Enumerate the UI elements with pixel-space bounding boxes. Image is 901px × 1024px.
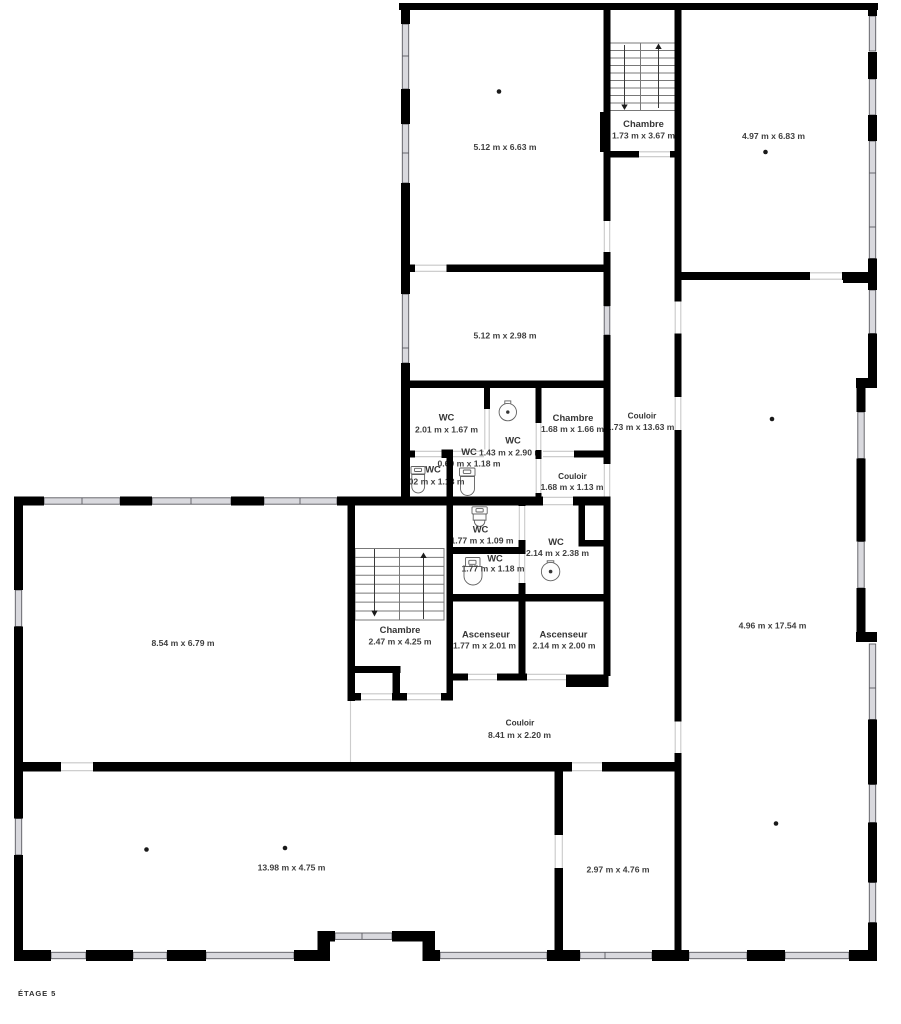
- svg-text:1.77 m x 2.01 m: 1.77 m x 2.01 m: [453, 641, 516, 651]
- svg-text:8.41 m x 2.20 m: 8.41 m x 2.20 m: [488, 730, 551, 740]
- svg-text:1.68 m x 1.13 m: 1.68 m x 1.13 m: [540, 482, 603, 492]
- svg-text:1.02 m x 1.18 m: 1.02 m x 1.18 m: [401, 477, 464, 487]
- svg-text:Couloir: Couloir: [628, 412, 657, 421]
- svg-text:WC: WC: [487, 553, 503, 564]
- svg-text:1.73 m x 13.63 m: 1.73 m x 13.63 m: [607, 422, 675, 432]
- svg-text:2.14 m x 2.38 m: 2.14 m x 2.38 m: [526, 548, 589, 558]
- svg-text:1.43 m x 2.90 m: 1.43 m x 2.90 m: [479, 448, 542, 458]
- svg-text:1.77 m x 1.18 m: 1.77 m x 1.18 m: [461, 564, 524, 574]
- svg-text:8.54 m x 6.79 m: 8.54 m x 6.79 m: [151, 638, 214, 648]
- svg-text:1.68 m x 1.66 m: 1.68 m x 1.66 m: [541, 424, 604, 434]
- svg-text:Couloir: Couloir: [506, 719, 535, 728]
- svg-text:4.97 m x 6.83 m: 4.97 m x 6.83 m: [742, 131, 805, 141]
- svg-text:5.12 m x 6.63 m: 5.12 m x 6.63 m: [473, 142, 536, 152]
- svg-text:13.98 m x 4.75 m: 13.98 m x 4.75 m: [258, 863, 326, 873]
- svg-text:Chambre: Chambre: [623, 118, 664, 129]
- svg-text:1.73 m x 3.67 m: 1.73 m x 3.67 m: [612, 131, 675, 141]
- svg-text:2.01 m x 1.67 m: 2.01 m x 1.67 m: [415, 425, 478, 435]
- svg-text:WC: WC: [505, 435, 521, 446]
- svg-text:Chambre: Chambre: [553, 412, 594, 423]
- svg-text:2.14 m x 2.00 m: 2.14 m x 2.00 m: [532, 641, 595, 651]
- svg-text:1.77 m x 1.09 m: 1.77 m x 1.09 m: [450, 536, 513, 546]
- svg-text:WC: WC: [548, 536, 564, 547]
- svg-text:4.96 m x 17.54 m: 4.96 m x 17.54 m: [739, 621, 807, 631]
- svg-text:ÉTAGE 5: ÉTAGE 5: [18, 989, 56, 998]
- svg-text:2.47 m x 4.25 m: 2.47 m x 4.25 m: [368, 637, 431, 647]
- svg-text:WC: WC: [439, 412, 455, 423]
- svg-text:Ascenseur: Ascenseur: [462, 629, 510, 640]
- svg-text:2.97 m x 4.76 m: 2.97 m x 4.76 m: [586, 865, 649, 875]
- svg-text:Ascenseur: Ascenseur: [540, 629, 588, 640]
- svg-text:Chambre: Chambre: [380, 624, 421, 635]
- svg-text:5.12 m x 2.98 m: 5.12 m x 2.98 m: [473, 331, 536, 341]
- svg-text:WC: WC: [425, 464, 441, 475]
- svg-text:Couloir: Couloir: [558, 472, 587, 481]
- svg-text:WC: WC: [473, 524, 489, 535]
- svg-text:WC: WC: [461, 446, 477, 457]
